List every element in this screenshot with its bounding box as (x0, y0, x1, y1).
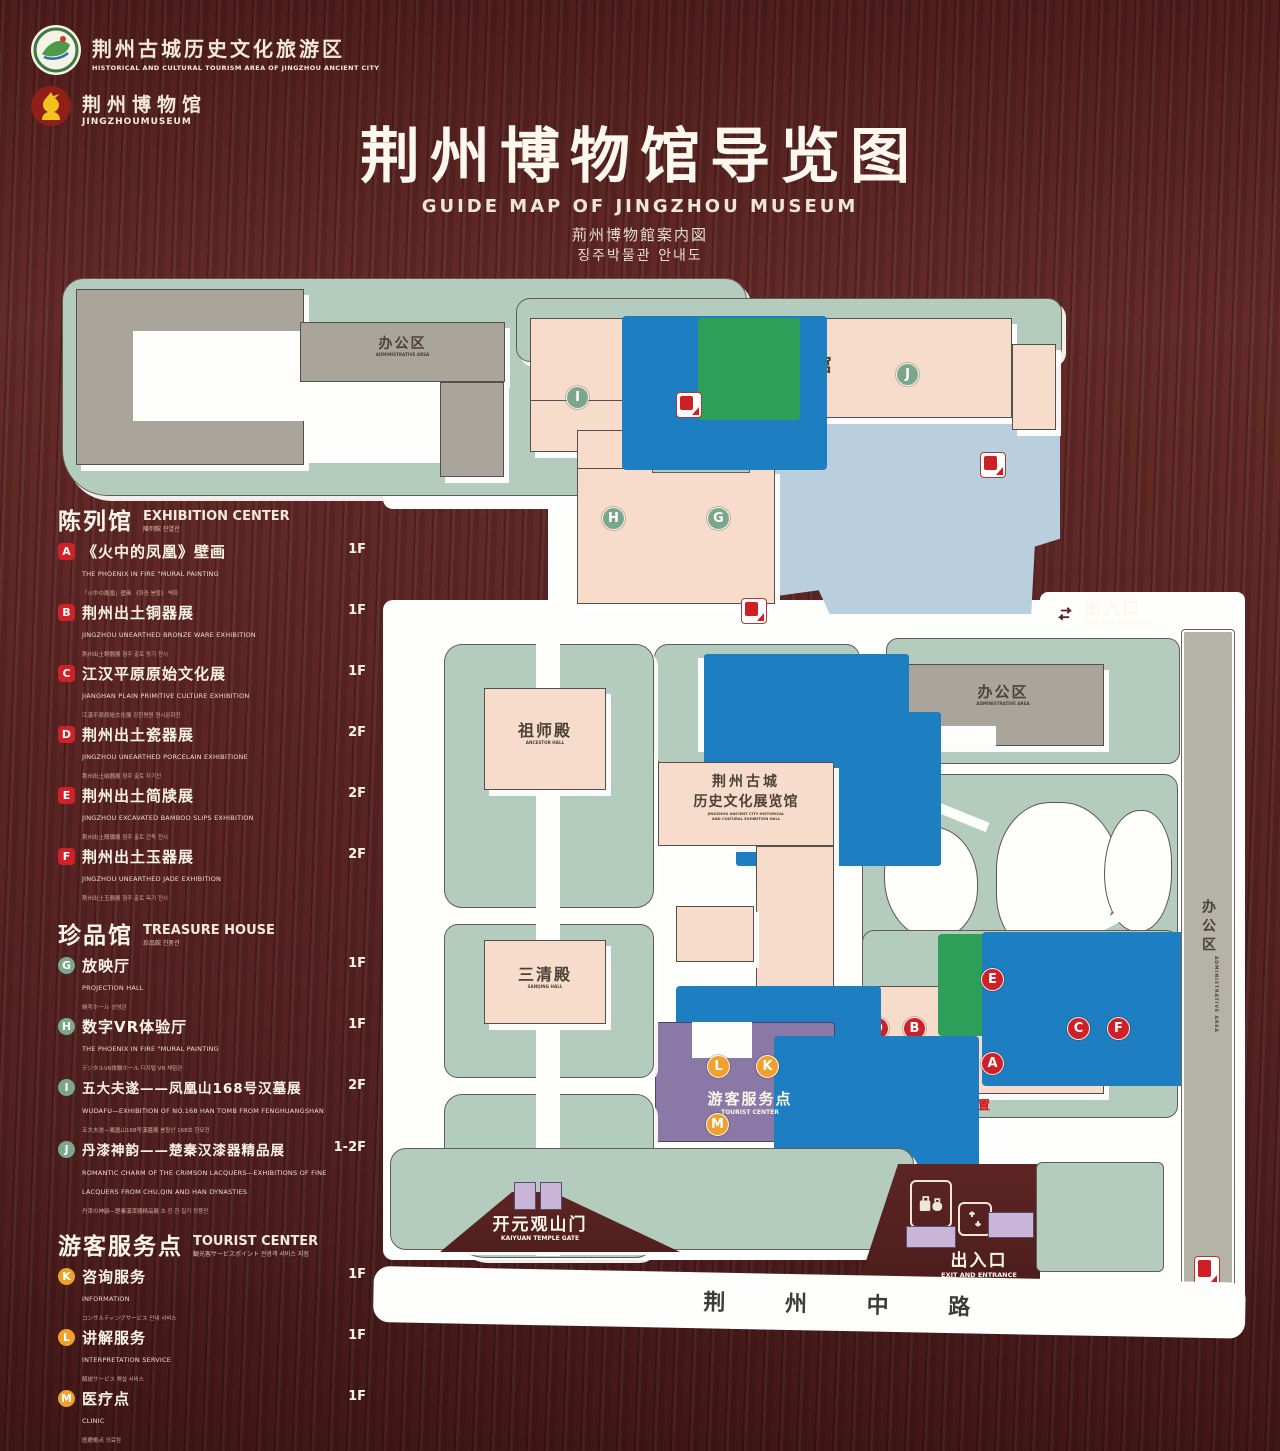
treasure-house-east-wing (1012, 344, 1056, 430)
page-title: 荆州博物馆导览图 (290, 108, 990, 195)
tourist-center-notch (692, 1022, 752, 1058)
tourism-area-logo-row: 荆州古城历史文化旅游区 HISTORICAL AND CULTURAL TOUR… (30, 24, 379, 80)
sanqing-hall-label: 三清殿 SANQING HALL (485, 961, 605, 990)
elevator-sign-treasure (698, 318, 800, 420)
admin-building-west-notch (133, 331, 304, 421)
legend-item-c: C 江汉平原原始文化展JIANGHAN PLAIN PRIMITIVE CULT… (58, 664, 366, 721)
tourism-area-logo-cn: 荆州古城历史文化旅游区 (92, 33, 379, 62)
floor-g: 1F (332, 956, 366, 971)
legend-section-treasure-house: 珍品馆 TREASURE HOUSE珍品館 진품관 (58, 916, 366, 950)
photo-spot-icon-1 (676, 392, 702, 418)
ancestor-hall-building: 祖师殿 ANCESTOR HALL (484, 688, 606, 790)
map-marker-g: G (707, 507, 730, 530)
map-marker-i: I (566, 386, 589, 409)
exit-entrance-icon-top (1052, 600, 1078, 626)
tourism-area-logo-icon (30, 24, 82, 80)
legend-item-b: B 荆州出土铜器展JINGZHOU UNEARTHED BRONZE WARE … (58, 603, 366, 660)
admin-top-label: 办公区 ADMINISTRATIVE AREA (301, 333, 504, 358)
legend-item-f: F 荆州出土玉器展JINGZHOU UNEARTHED JADE EXHIBIT… (58, 847, 366, 904)
floor-b: 1F (332, 603, 366, 618)
map-marker-l: L (707, 1055, 730, 1078)
floor-e: 2F (332, 786, 366, 801)
badge-d: D (58, 726, 75, 743)
badge-b: B (58, 604, 75, 621)
badge-f: F (58, 848, 75, 865)
south-east-green (1036, 1162, 1164, 1272)
badge-j: J (58, 1141, 75, 1158)
floor-l: 1F (332, 1328, 366, 1343)
legend-panel: 陈列馆 EXHIBITION CENTER陳列館 진열관 A 《火中的凤凰》壁画… (58, 502, 366, 1451)
south-gate-east (988, 1212, 1034, 1238)
page-title-kr: 징주박물관 안내도 (290, 245, 990, 265)
map-marker-f: F (1107, 1017, 1130, 1040)
page-title-jp: 荊州博物館案内図 (290, 224, 990, 245)
legend-item-l: L 讲解服务INTERPRETATION SERVICE解説サービス 해설 서비… (58, 1328, 366, 1385)
legend-item-e: E 荆州出土简牍展JINGZHOU EXCAVATED BAMBOO SLIPS… (58, 786, 366, 843)
badge-h: H (58, 1018, 75, 1035)
restroom-sign-exhibition (982, 932, 1187, 1086)
legend-item-d: D 荆州出土瓷器展JINGZHOU UNEARTHED PORCELAIN EX… (58, 725, 366, 782)
south-gate-west (906, 1226, 956, 1248)
floor-i: 2F (332, 1078, 366, 1093)
map-marker-e: E (981, 968, 1004, 991)
elevator-arrows-icon-map (958, 1202, 992, 1236)
badge-a: A (58, 543, 75, 560)
legend-item-a: A 《火中的凤凰》壁画THE PHOENIX IN FIRE "MURAL PA… (58, 542, 366, 599)
museum-logo-icon (30, 84, 72, 132)
tourism-area-logo-en: HISTORICAL AND CULTURAL TOURISM AREA OF … (92, 64, 379, 72)
badge-m: M (58, 1390, 75, 1407)
museum-logo-row: 荆州博物馆 JINGZHOUMUSEUM (30, 84, 207, 132)
admin-right-notch (938, 726, 996, 747)
floor-d: 2F (332, 725, 366, 740)
map-marker-h: H (602, 507, 625, 530)
left-luggage-icon-map (910, 1180, 952, 1228)
road-label: 荆 州 中 路 (703, 1284, 997, 1322)
badge-e: E (58, 787, 75, 804)
badge-k: K (58, 1268, 75, 1285)
legend-item-i: I 五大夫遂——凤凰山168号汉墓展WUDAFU—EXHIBITION OF N… (58, 1078, 366, 1136)
kaiyuan-gate-right (540, 1182, 562, 1210)
map-marker-j: J (896, 363, 919, 386)
badge-c: C (58, 665, 75, 682)
exit-top-label: 出入口 EXIT AND ENTRANCE (1084, 594, 1204, 626)
admin-building-arm (440, 382, 504, 477)
photo-spot-icon-3 (980, 452, 1006, 478)
guide-map-signboard: 荆州古城历史文化旅游区 HISTORICAL AND CULTURAL TOUR… (0, 0, 1280, 1451)
legend-item-m: M 医疗点CLINIC医療拠点 의료점 1F (58, 1389, 366, 1446)
kaiyuan-gate-left (514, 1182, 536, 1210)
floor-h: 1F (332, 1017, 366, 1032)
ancestor-hall-label: 祖师殿 ANCESTOR HALL (485, 717, 605, 746)
legend-section-tourist-center: 游客服务点 TOURIST CENTER観光客サービスポイント 관광객 서비스 … (58, 1227, 366, 1261)
floor-k: 1F (332, 1267, 366, 1282)
legend-item-k: K 咨询服务INFORMATIONコンサルティングサービス 안내 서비스 1F (58, 1267, 366, 1324)
floor-m: 1F (332, 1389, 366, 1404)
jgac-hall-room (676, 906, 754, 962)
legend-item-h: H 数字VR体验厅THE PHOENIX IN FIRE "MURAL PAIN… (58, 1017, 366, 1074)
kaiyuan-gate-label: 开元观山门 KAIYUAN TEMPLE GATE (450, 1210, 630, 1242)
sanqing-hall-building: 三清殿 SANQING HALL (484, 940, 606, 1024)
museum-logo-cn: 荆州博物馆 (82, 90, 207, 117)
admin-strip-building: 办公区 ADMINISTRATIVE AREA (1182, 630, 1234, 1302)
treasure-house-south-block (577, 468, 775, 604)
admin-strip-label: 办公区 ADMINISTRATIVE AREA (1198, 899, 1218, 1033)
page-title-en: GUIDE MAP OF JINGZHOU MUSEUM (290, 196, 990, 217)
jgac-hall-label: 荆州古城 历史文化展览馆 JINGZHOU ANCIENT CITY HISTO… (659, 771, 833, 821)
legend-section-exhibition-center: 陈列馆 EXHIBITION CENTER陳列館 진열관 (58, 502, 366, 536)
floor-j: 1-2F (332, 1140, 366, 1155)
tourist-center-label: 游客服务点 TOURIST CENTER (684, 1088, 816, 1116)
admin-building-north: 办公区 ADMINISTRATIVE AREA (300, 322, 505, 382)
jgac-hall-building: 荆州古城 历史文化展览馆 JINGZHOU ANCIENT CITY HISTO… (658, 762, 834, 846)
floor-c: 1F (332, 664, 366, 679)
map-marker-m: M (706, 1113, 729, 1136)
map-marker-k: K (756, 1055, 779, 1078)
legend-item-g: G 放映厅PROJECTION HALL映写ホール 상영관 1F (58, 956, 366, 1013)
badge-g: G (58, 957, 75, 974)
floor-f: 2F (332, 847, 366, 862)
map-marker-c: C (1067, 1017, 1090, 1040)
admin-right-label: 办公区 ADMINISTRATIVE AREA (903, 681, 1103, 707)
museum-logo-en: JINGZHOUMUSEUM (82, 117, 207, 127)
photo-spot-icon-2 (741, 598, 767, 624)
floor-a: 1F (332, 542, 366, 557)
exit-bottom-label: 出入口 EXIT AND ENTRANCE (904, 1246, 1054, 1279)
badge-i: I (58, 1079, 75, 1096)
badge-l: L (58, 1329, 75, 1346)
legend-item-j: J 丹漆神韵——楚秦汉漆器精品展ROMANTIC CHARM OF THE CR… (58, 1140, 366, 1217)
map-marker-a: A (981, 1052, 1004, 1075)
